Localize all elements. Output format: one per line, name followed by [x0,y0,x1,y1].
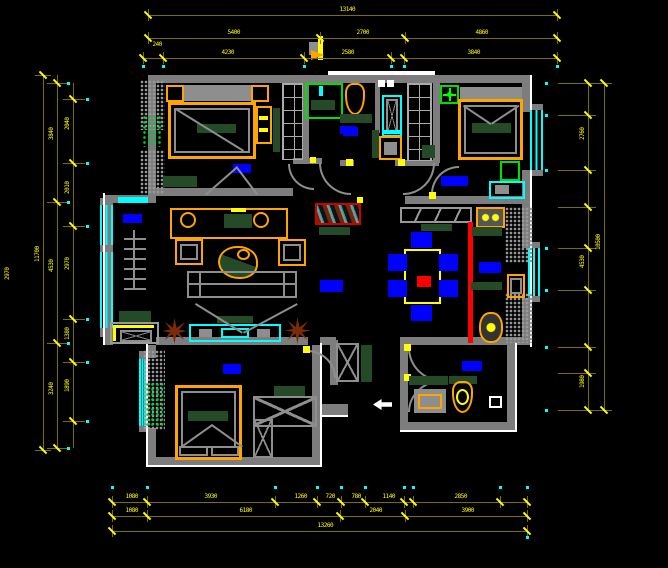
matt [463,89,489,98]
dim-dot [545,247,548,250]
dim-text: 2970 [65,269,71,270]
dim-line-v [57,75,58,450]
room-label-kitchen [479,262,501,273]
dim-dot [146,486,149,489]
yellow [231,208,246,212]
white [400,430,517,432]
pillow [188,411,228,421]
wall [400,345,408,430]
dim-line-h [143,58,557,59]
dim-line-h [148,38,557,39]
dim-dot [545,82,548,85]
dim-dot [86,361,89,364]
dim-text: 2700 [357,30,358,36]
ocirc [253,212,269,228]
dim-dot [67,342,70,345]
outer-wall-top [148,75,530,83]
white [328,71,435,75]
dim-dot [545,114,548,117]
ocirc [237,249,250,260]
dim-line-v [604,83,605,410]
dim-line-v [43,75,44,450]
dining-chair [388,254,407,271]
ocirc [180,212,196,228]
dim-text: 4230 [222,50,223,56]
bay-window-left-1 [100,205,113,245]
dim-text: 1380 [65,339,71,340]
dim-text: 4530 [580,267,586,268]
dim-text: 1080 [126,508,127,514]
dgreen [421,224,452,231]
door-arc-hall-left [319,163,351,195]
dim-dot [86,420,89,423]
yellow [116,325,154,328]
dim-dot [86,162,89,165]
dim-text: 1890 [65,391,71,392]
dim-dot [545,346,548,349]
dim-dot [556,65,559,68]
yellow [259,116,268,120]
dgreen [274,386,305,396]
room-label-dining [320,280,343,292]
matt [510,278,522,294]
dim-dot [403,486,406,489]
dim-text: 13260 [318,523,319,529]
dim-dot [390,65,393,68]
hinge [310,157,316,163]
bay-window-left-2 [100,252,113,328]
dining-chair [388,280,407,297]
dresser [256,106,272,144]
dim-dot [545,169,548,172]
dim-text: 1140 [383,494,384,500]
dgreen [361,345,372,382]
plantin [443,88,456,101]
dim-text: 2850 [455,494,456,500]
xbox [386,99,398,133]
matt [180,244,198,260]
dim-dot [403,65,406,68]
dgreen [422,145,435,158]
table-center [417,276,431,287]
orangebox [418,394,442,409]
hinge [429,192,436,199]
hinge [303,346,310,353]
room-label-bedroom3 [223,364,241,374]
hinge [346,159,353,166]
matt [492,89,518,98]
gblock [384,142,397,155]
gblock [257,329,270,337]
dim-text: 4860 [476,30,477,36]
white [378,80,385,87]
room-label-bedroom2 [441,176,468,186]
shower-head [319,86,323,96]
dim-text: 4530 [49,271,55,272]
headboard [184,85,251,101]
matt [179,446,208,456]
nightstand [251,85,269,102]
dim-text: 1980 [580,387,586,388]
door-arc-bathroom [288,164,314,190]
floor-drain [489,396,502,408]
window-bedroom2 [530,110,543,170]
dim-dot [499,486,502,489]
water-dispenser [479,312,503,343]
entry-arrow [373,399,392,410]
dim-dot [67,447,70,450]
dim-text: 2040 [370,508,371,514]
wall [100,245,113,252]
matt [283,244,301,261]
dim-dot [545,409,548,412]
dining-chair [411,305,432,321]
dim-text: 1080 [126,494,127,500]
dim-text: 3840 [468,50,469,56]
coat-rack [124,230,146,290]
plantwall [142,115,163,147]
wardrobe-bedroom1 [282,83,303,160]
decor-cabinet [315,203,361,225]
dim-dot [340,486,343,489]
wall-bedroom1-south [148,188,293,196]
white [148,465,322,467]
white [322,415,348,417]
dim-dot [67,201,70,204]
dim-text: 11700 [35,261,41,262]
dim-dot [364,486,367,489]
dining-chair [411,232,432,248]
xbox [253,419,273,458]
dim-dot [67,82,70,85]
runner-rug [273,108,280,152]
shoe-cabinet [400,207,472,223]
dim-dot [86,318,89,321]
dim-text: 10500 [596,249,602,250]
cad-floorplan-canvas[interactable]: 1314054002700486024042302580384010803930… [0,0,668,568]
dgreen [372,130,379,158]
dgreen [319,227,350,235]
counter [471,282,502,290]
dim-line-h [112,516,527,517]
wall [400,422,515,430]
dining-chair [439,280,458,297]
white [387,80,394,87]
dim-dot [142,65,145,68]
hinge [404,344,411,351]
dim-text: 2040 [65,129,71,130]
dim-line-h [148,15,557,16]
wall [100,198,113,205]
dim-text: 240 [153,42,154,48]
entry-cabinet [336,343,359,382]
bench [163,176,197,187]
dim-line-h [112,531,527,532]
dim-dot [526,536,529,539]
dim-dot [316,486,319,489]
mirror [384,130,402,134]
dim-text: 3240 [49,394,55,395]
dim-text: 13140 [340,7,341,13]
dim-text: 780 [352,494,353,500]
dim-dot [526,486,529,489]
dim-dot [162,65,165,68]
counter [472,227,502,236]
ycirc [456,389,469,405]
dining-chair [439,254,458,271]
dim-text: 6180 [240,508,241,514]
plantwall [145,382,163,426]
dim-line-v [73,83,74,448]
dim-text: 2760 [580,139,586,140]
dim-text: 3900 [462,508,463,514]
hinge [357,197,363,203]
room-label-hall [343,127,358,136]
sofa-cushion [224,214,252,228]
dim-text: 3930 [205,494,206,500]
dim-text: 5400 [228,30,229,36]
dim-dot [86,225,89,228]
counter [409,376,448,385]
matt [211,446,239,456]
dim-text: 720 [326,494,327,500]
dim-dot [86,98,89,101]
white [515,343,517,432]
stove [476,207,505,228]
dim-dot [274,486,277,489]
xbox [120,330,152,342]
dim-dot [303,65,306,68]
hatch [505,207,533,263]
dim-text: 3840 [49,139,55,140]
hatch [505,293,533,343]
vanity [340,114,372,123]
nightstand [166,85,184,102]
dim-dot [412,486,415,489]
outer-wall-right [522,75,530,112]
wall [507,345,515,430]
margin-label: 2970 [5,279,11,280]
room-label-bathroom2 [462,361,482,371]
dim-dot [111,486,114,489]
dgreen [311,100,335,110]
desk-chair [500,161,520,181]
window-seat [119,311,151,322]
living-rug [187,271,297,298]
window-living-top [118,197,148,203]
toilet-bathroom-top [345,83,365,115]
dim-text: 2010 [65,193,71,194]
hinge [398,159,405,166]
yellow [259,128,268,132]
hatch [140,150,165,195]
dim-dot [545,289,548,292]
dim-text: 2580 [342,50,343,56]
room-label-living [123,214,142,223]
dim-text: 1260 [295,494,296,500]
gblock [495,185,509,194]
gblock [199,329,212,337]
